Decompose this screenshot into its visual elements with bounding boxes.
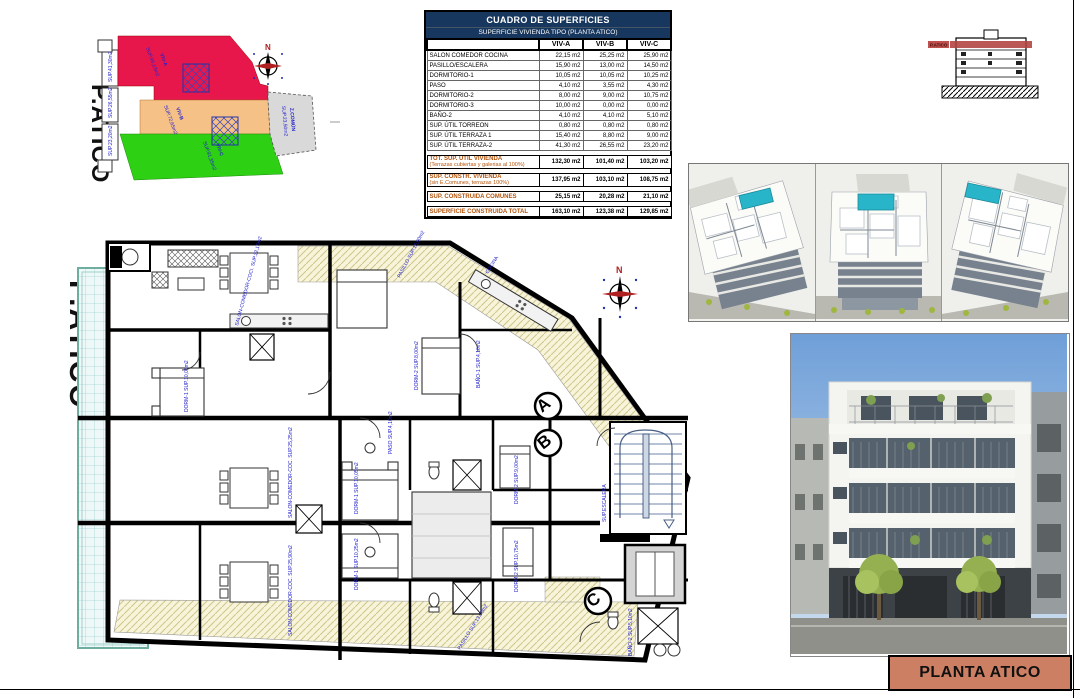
paso-label: PASO SUP.4,10m2 bbox=[388, 411, 394, 454]
salon-c-label: SALON-COMEDOR-COC. SUP.25,90m2 bbox=[288, 545, 294, 636]
table-row: DORMITORIO-28,00 m29,00 m210,75 m2 bbox=[427, 91, 671, 101]
parapet bbox=[829, 424, 1031, 434]
edge-label-1: SUP.41,30m2 bbox=[108, 51, 114, 82]
building-axon bbox=[830, 174, 928, 310]
table-row: SUP. ÚTIL TORREON0,80 m20,80 m20,80 m2 bbox=[427, 121, 671, 131]
atico-level-band bbox=[950, 41, 1032, 48]
surface-table-subtitle: SUPERFICIE VIVIENDA TIPO (PLANTA ATICO) bbox=[426, 27, 670, 38]
sheet-frame-right bbox=[1073, 0, 1074, 698]
total-construida-row: SUPERFICIE CONSTRUIDA TOTAL 163,10 m2123… bbox=[427, 207, 671, 217]
col-viv-b: VIV-B bbox=[583, 39, 627, 50]
facade-render bbox=[790, 333, 1070, 657]
dorm1-b-label: DORM-1 SUP.10,05m2 bbox=[354, 462, 360, 514]
section-marker-b: B bbox=[534, 430, 561, 456]
col-viv-c: VIV-C bbox=[627, 39, 671, 50]
table-row: BAÑO-24,10 m24,10 m25,10 m2 bbox=[427, 111, 671, 121]
bano1-label: BAÑO-1 SUP.4,10m2 bbox=[475, 340, 482, 388]
table-row: DORMITORIO-110,05 m210,05 m210,25 m2 bbox=[427, 71, 671, 81]
pool bbox=[858, 194, 894, 210]
title-block: PLANTA ATICO bbox=[888, 655, 1072, 691]
edge-label-3: SUP.23,20m2 bbox=[108, 125, 114, 156]
dorm3-label: DORM-2 SUP.8,00m2 bbox=[414, 341, 420, 390]
surface-table-title: CUADRO DE SUPERFICIES bbox=[426, 12, 670, 27]
salon-b-label: SALON-COMEDOR-COC. SUP.25,25m2 bbox=[288, 427, 294, 518]
table-row: PASO4,10 m23,55 m24,30 m2 bbox=[427, 81, 671, 91]
table-header-row: VIV-A VIV-B VIV-C bbox=[427, 39, 671, 50]
col-viv-a: VIV-A bbox=[539, 39, 583, 50]
balcony-floors bbox=[833, 438, 1015, 568]
svg-text:N: N bbox=[616, 265, 623, 275]
axon-view-1 bbox=[689, 164, 816, 321]
dorm2-r2-label: DORM-2 SUP.10,75m2 bbox=[514, 540, 520, 592]
table-row: DORMITORIO-310,00 m20,00 m20,00 m2 bbox=[427, 101, 671, 111]
surface-table: CUADRO DE SUPERFICIES SUPERFICIE VIVIEND… bbox=[424, 10, 672, 219]
stairwell bbox=[610, 422, 686, 534]
utility-room bbox=[108, 243, 150, 271]
ground-hatch bbox=[942, 86, 1038, 98]
bano2-label: BAÑO-2 SUP.5,10m2 bbox=[627, 608, 634, 656]
total-util-row: TOT. SUP. UTIL VIVIENDA(Terrazas cubiert… bbox=[427, 156, 671, 169]
zone-viv-b bbox=[140, 100, 270, 134]
building-section bbox=[956, 30, 1026, 86]
table-row: PASILLO/ESCALERA15,90 m213,00 m214,50 m2 bbox=[427, 61, 671, 71]
dorm2-r1-label: DORM-2 SUP.9,00m2 bbox=[514, 455, 520, 504]
dorm1-c-label: DORM-1 SUP.10,25m2 bbox=[354, 538, 360, 590]
dorm1-a-label: DORM-1 SUP.10,05m2 bbox=[184, 360, 190, 412]
axon-views bbox=[688, 163, 1069, 322]
axon-view-2 bbox=[816, 164, 943, 321]
lightwell bbox=[412, 492, 491, 578]
section-elevation-thumb: P.ATICO bbox=[928, 22, 1053, 106]
axon-view-3 bbox=[942, 164, 1068, 321]
main-floor-plan: P.ATICO TERRAZA SUP.41,30m2 TERRAZA SUP.… bbox=[40, 222, 705, 667]
constr-vivienda-row: SUP. CONSTR. VIVIENDA(sin E.Comunes, ter… bbox=[427, 174, 671, 187]
site-key-plan: P.ATICO SUP.41,30m2 SUP.26,55m2 SUP.23,2… bbox=[40, 22, 340, 197]
comunes-row: SUP. CONSTRUIDA COMUNES 25,15 m220,28 m2… bbox=[427, 192, 671, 202]
table-row: SALON COMEDOR COCINA22,15 m225,25 m225,9… bbox=[427, 50, 671, 61]
drawing-sheet: P.ATICO SUP.41,30m2 SUP.26,55m2 SUP.23,2… bbox=[0, 0, 1080, 698]
plan-north-compass-icon: N bbox=[602, 265, 638, 318]
table-row: SUP. ÚTIL TERRAZA-241,30 m226,55 m223,20… bbox=[427, 141, 671, 151]
street bbox=[791, 618, 1067, 654]
zone-viv-c bbox=[120, 134, 283, 180]
escalera-label: SUP.ESCALERA bbox=[602, 484, 608, 522]
edge-label-2: SUP.26,55m2 bbox=[108, 87, 114, 118]
atico-floor bbox=[847, 390, 1015, 424]
table-row: SUP. ÚTIL TERRAZA 115,40 m28,80 m29,00 m… bbox=[427, 131, 671, 141]
svg-text:N: N bbox=[265, 43, 271, 52]
atico-band-label: P.ATICO bbox=[930, 43, 948, 48]
title-block-text: PLANTA ATICO bbox=[919, 664, 1041, 682]
